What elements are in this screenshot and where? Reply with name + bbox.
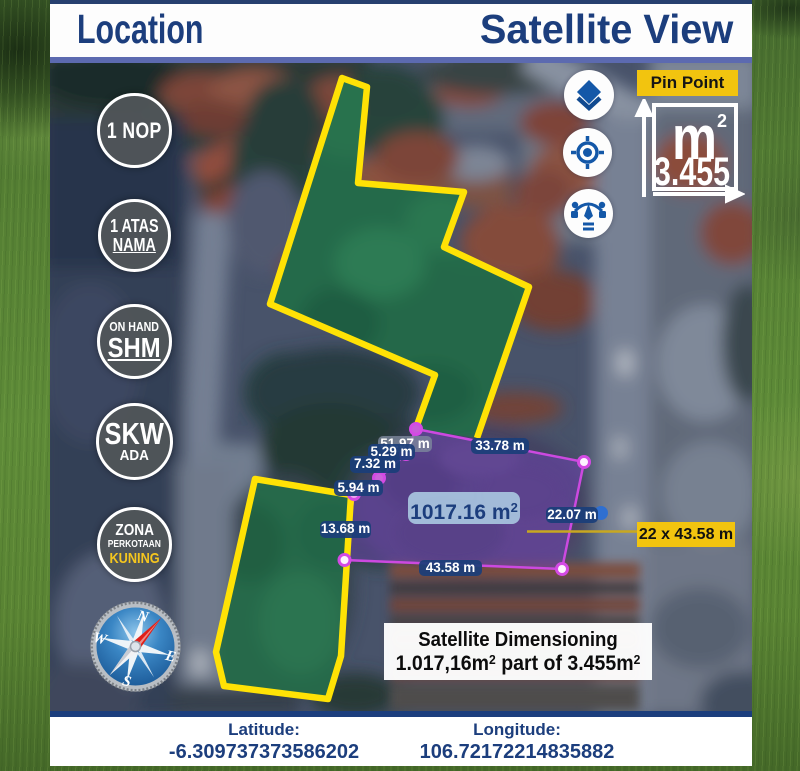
svg-text:3.455: 3.455 [654, 150, 730, 194]
svg-text:2: 2 [717, 111, 727, 131]
